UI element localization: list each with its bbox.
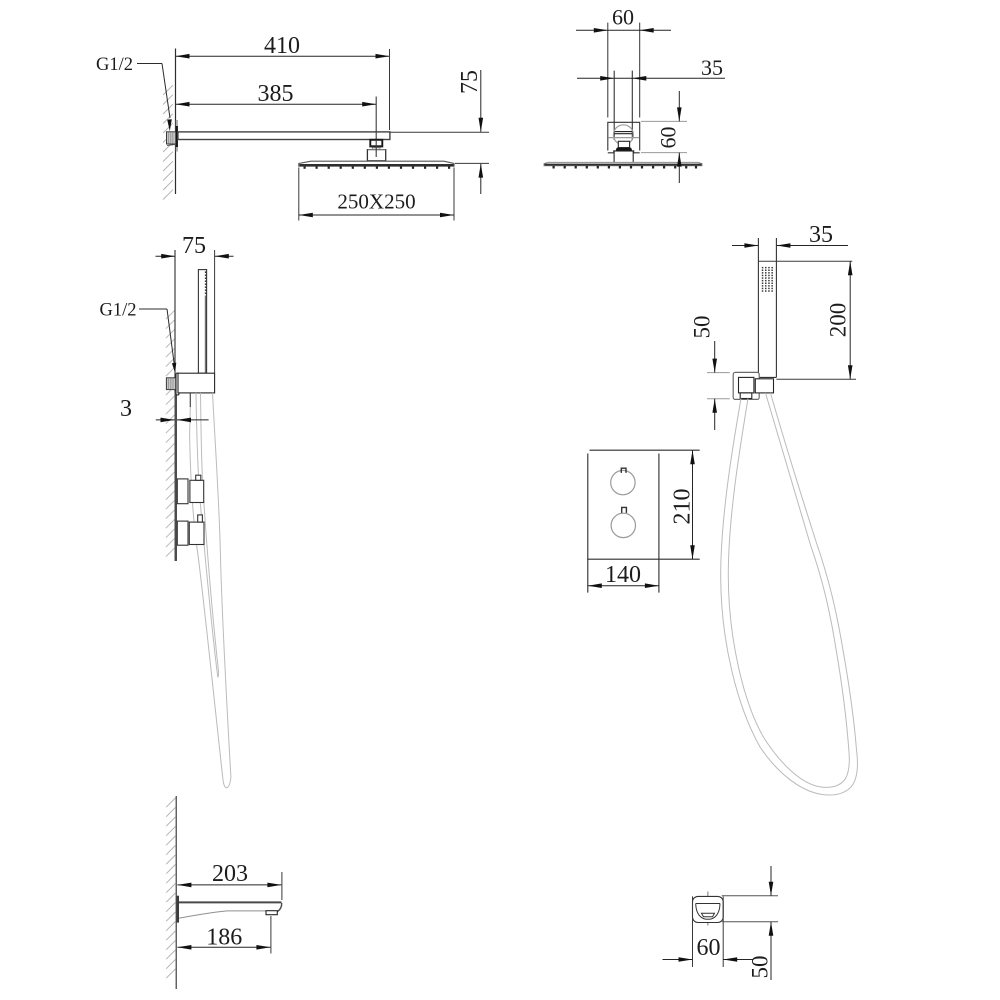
svg-text:3: 3 — [120, 396, 132, 422]
svg-text:200: 200 — [826, 303, 851, 338]
svg-text:186: 186 — [206, 924, 242, 950]
svg-text:60: 60 — [656, 127, 681, 149]
svg-text:G1/2: G1/2 — [96, 55, 133, 75]
svg-text:50: 50 — [690, 316, 715, 339]
svg-text:50: 50 — [748, 956, 773, 979]
svg-text:60: 60 — [612, 5, 634, 30]
svg-text:210: 210 — [670, 489, 696, 525]
svg-text:203: 203 — [212, 861, 248, 887]
svg-text:35: 35 — [809, 222, 833, 248]
svg-text:75: 75 — [457, 70, 483, 94]
svg-text:60: 60 — [697, 935, 721, 961]
svg-text:140: 140 — [605, 562, 641, 588]
svg-text:410: 410 — [264, 33, 300, 59]
svg-text:250X250: 250X250 — [337, 190, 415, 214]
svg-text:G1/2: G1/2 — [100, 301, 137, 321]
svg-text:385: 385 — [258, 81, 294, 107]
svg-text:75: 75 — [182, 233, 206, 259]
svg-text:35: 35 — [701, 55, 723, 80]
